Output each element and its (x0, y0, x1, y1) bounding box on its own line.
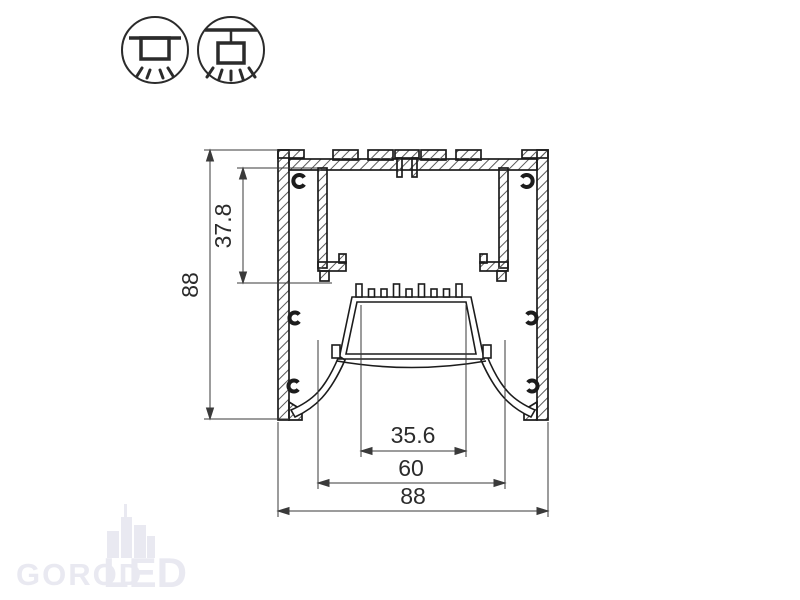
surface-mount-light-icon (122, 17, 188, 83)
dim-label-shelf-width: 35.6 (391, 422, 436, 448)
dimension-lines (204, 150, 548, 517)
screw-boss-icon (293, 175, 304, 187)
top-slot-tooth (333, 150, 358, 160)
platform-corner-hook (483, 345, 491, 358)
platform-lens-arc (337, 361, 486, 368)
drawing-page: GOROD LED (0, 0, 800, 600)
led-platform (332, 284, 491, 368)
dim-shelf-width (361, 448, 466, 455)
profile-left-wall (278, 150, 289, 420)
inner-right-wall (499, 168, 508, 268)
top-center-cap (395, 150, 419, 158)
platform-inner (346, 302, 476, 354)
dim-label-recess-depth: 37.8 (210, 204, 236, 249)
pendant-mount-light-icon (198, 17, 264, 83)
inner-right-hook-stub (497, 271, 506, 281)
mount-type-icons (122, 17, 264, 83)
profile-top-right-flange (522, 150, 548, 158)
screw-boss-icon (289, 313, 299, 324)
heatsink-fins (356, 284, 462, 297)
profile-top-left-flange (278, 150, 304, 158)
top-slot-tooth (456, 150, 481, 160)
dim-overall-height (207, 150, 214, 419)
screw-boss-icon (522, 175, 533, 187)
dimension-labels: 88 37.8 35.6 60 88 (177, 204, 435, 509)
diffuser-right-wing (481, 356, 535, 417)
top-slot-tooth (368, 150, 393, 160)
dim-recess-depth (240, 168, 247, 283)
top-center-leg (397, 158, 402, 177)
inner-left-hook-stub (320, 271, 329, 281)
screw-boss-icon (527, 313, 537, 324)
top-slot-tooth (421, 150, 446, 160)
screw-boss-icon (528, 381, 538, 392)
platform-corner-hook (332, 345, 340, 358)
top-center-leg (412, 158, 417, 177)
dim-label-overall-height: 88 (177, 272, 203, 298)
inner-right-hook-tick (480, 254, 487, 263)
inner-left-hook-tick (339, 254, 346, 263)
inner-left-wall (318, 168, 327, 268)
profile-drawing-canvas: GOROD LED (0, 0, 800, 600)
light-rays-icon (137, 68, 173, 78)
watermark-logo: GOROD LED (16, 504, 187, 596)
dim-label-inner-opening: 60 (398, 455, 424, 481)
profile-right-wall (537, 150, 548, 420)
watermark-led-text: LED (103, 549, 187, 596)
screw-boss-icon (288, 381, 298, 392)
dim-label-overall-width: 88 (400, 483, 426, 509)
